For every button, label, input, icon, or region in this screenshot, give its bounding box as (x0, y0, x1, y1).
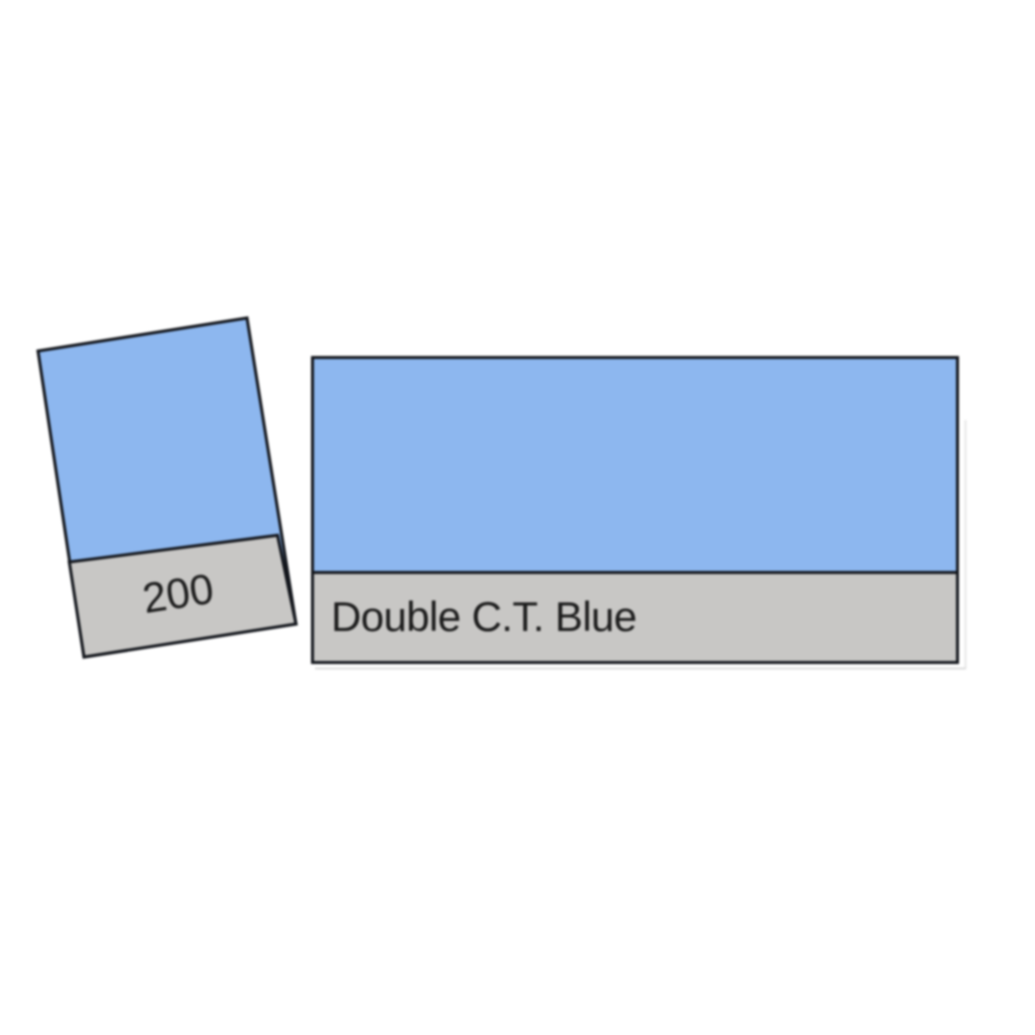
svg-text:Double C.T. Blue: Double C.T. Blue (331, 593, 637, 640)
